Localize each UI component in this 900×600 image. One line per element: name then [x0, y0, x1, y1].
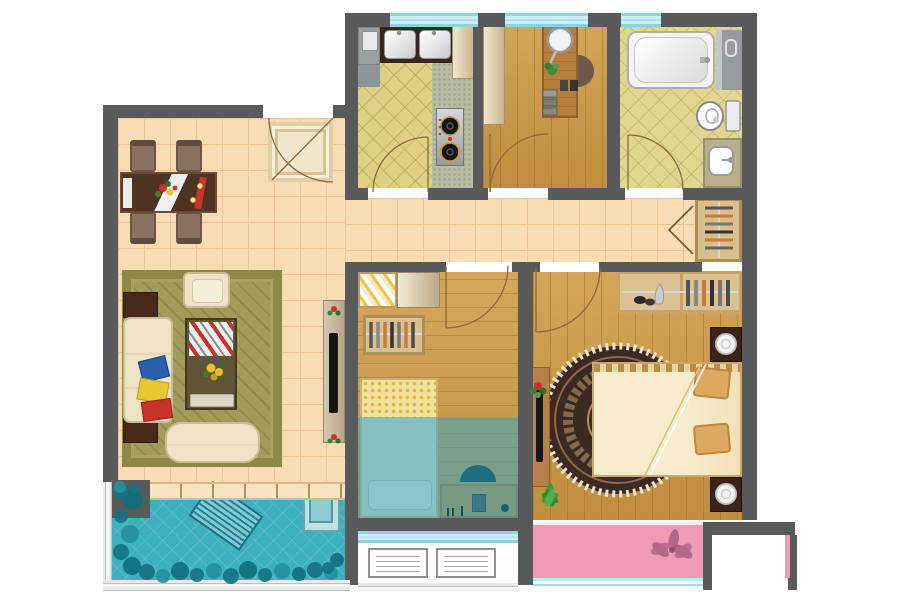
small-bedroom-window	[358, 531, 518, 543]
floor-bay-window	[533, 522, 703, 581]
wall-study-bottom	[548, 188, 625, 200]
duvet-yellow	[362, 380, 436, 418]
kitchen-tall-cabinet	[452, 23, 475, 79]
dining-chair	[130, 212, 156, 244]
wall-small-bedroom-left	[345, 272, 358, 585]
wall-hall-bedroom-c	[599, 262, 702, 272]
master-tv	[536, 390, 543, 462]
bench-daybed	[165, 422, 260, 463]
washbasin	[708, 146, 734, 176]
living-tv	[329, 333, 338, 413]
radiator-unit	[436, 548, 496, 578]
serving-tray	[190, 394, 234, 407]
magazine	[189, 322, 233, 356]
wall-study-bath	[607, 13, 620, 200]
wall-kitchen-bottom-b	[428, 188, 488, 200]
side-table	[123, 292, 158, 318]
gas-stove	[436, 108, 464, 166]
wall-top-left	[103, 105, 263, 118]
wall-hall-bedroom-a	[345, 262, 446, 272]
coffee-table	[185, 318, 237, 410]
wall-bath-bottom	[683, 188, 742, 200]
wall-bottom-right-stub-left	[703, 535, 712, 590]
nightstand	[710, 477, 742, 512]
bay-window-railing	[533, 578, 703, 590]
plain-dresser	[397, 272, 440, 308]
fridge-door	[362, 31, 378, 51]
radiator-unit	[368, 548, 428, 578]
sink-counter	[380, 27, 456, 63]
washing-machine-door	[309, 497, 333, 523]
sink-basin	[384, 30, 416, 59]
armchair	[183, 272, 230, 308]
wall-bedroom-divider	[518, 272, 533, 585]
balcony-left-railing	[103, 482, 112, 585]
study-desk	[542, 22, 578, 118]
fridge-unit	[358, 27, 380, 65]
wall-bottom-right-horizontal	[703, 522, 795, 535]
master-pillow	[693, 366, 732, 400]
bathroom-window	[621, 13, 661, 27]
wall-kitchen-bottom-a	[345, 188, 368, 200]
placemat	[123, 178, 132, 208]
dining-chair	[176, 212, 202, 244]
living-balcony-slider	[150, 482, 345, 500]
wall-balcony-pillar	[110, 480, 150, 518]
armchair-cushion	[192, 279, 223, 303]
entry-doormat	[268, 122, 333, 182]
study-tall-cabinet	[483, 22, 505, 125]
shower-partition	[716, 30, 722, 90]
wall-kitchen-left	[345, 13, 358, 195]
wardrobe-divider	[680, 274, 683, 310]
utility-balcony-railing	[358, 583, 518, 591]
wall-left	[103, 105, 118, 518]
washbasin-counter	[703, 138, 742, 188]
kitchen-window	[390, 13, 478, 27]
sink-basin	[419, 30, 451, 59]
bathtub	[627, 31, 715, 89]
blue-wash-overlay	[358, 417, 518, 518]
bay-pink-strip-right	[785, 535, 790, 578]
throw-pillow-red	[141, 398, 173, 422]
hall-closet	[695, 198, 742, 262]
wall-kitchen-study	[473, 13, 483, 200]
shower-area	[722, 30, 742, 90]
study-window	[505, 13, 588, 27]
wall-right	[742, 13, 757, 520]
master-wardrobe	[617, 271, 742, 313]
master-pillow	[693, 422, 731, 455]
nightstand	[710, 327, 742, 362]
floor-hallway	[345, 198, 742, 262]
bathtub-inner	[634, 37, 708, 83]
wall-small-bedroom-bottom	[358, 518, 518, 531]
striped-dresser	[358, 272, 397, 308]
dining-chair	[176, 140, 202, 172]
kitchen-cabinet-small	[358, 65, 380, 87]
wall-hall-bedroom-b	[512, 262, 540, 272]
dining-chair	[130, 140, 156, 172]
small-bedroom-wardrobe	[363, 315, 425, 355]
floor-plan	[0, 0, 900, 600]
balcony-bottom-railing	[103, 580, 350, 591]
